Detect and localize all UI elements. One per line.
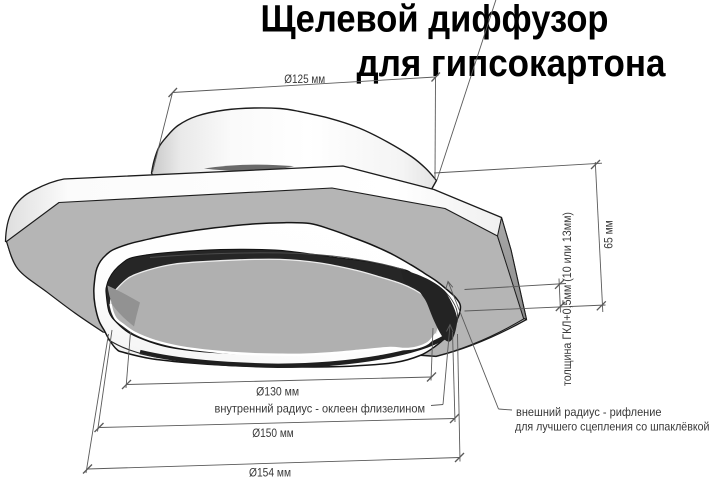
svg-text:Ø130 мм: Ø130 мм xyxy=(256,384,299,398)
svg-text:Ø150 мм: Ø150 мм xyxy=(252,426,294,440)
svg-text:внутренний радиус - оклеен фли: внутренний радиус - оклеен флизелином xyxy=(215,402,426,416)
svg-text:внешний радиус - рифление: внешний радиус - рифление xyxy=(516,405,662,419)
svg-text:толщина ГКЛ+0,5мм (10 или 13мм: толщина ГКЛ+0,5мм (10 или 13мм) xyxy=(560,212,574,386)
svg-text:Ø125 мм: Ø125 мм xyxy=(284,72,325,86)
svg-text:Ø154 мм: Ø154 мм xyxy=(249,466,291,480)
svg-text:для лучшего сцепления со шпакл: для лучшего сцепления со шпаклёвкой xyxy=(515,420,710,434)
svg-text:65 мм: 65 мм xyxy=(602,220,616,249)
svg-text:Щелевой диффузор: Щелевой диффузор xyxy=(261,0,609,41)
